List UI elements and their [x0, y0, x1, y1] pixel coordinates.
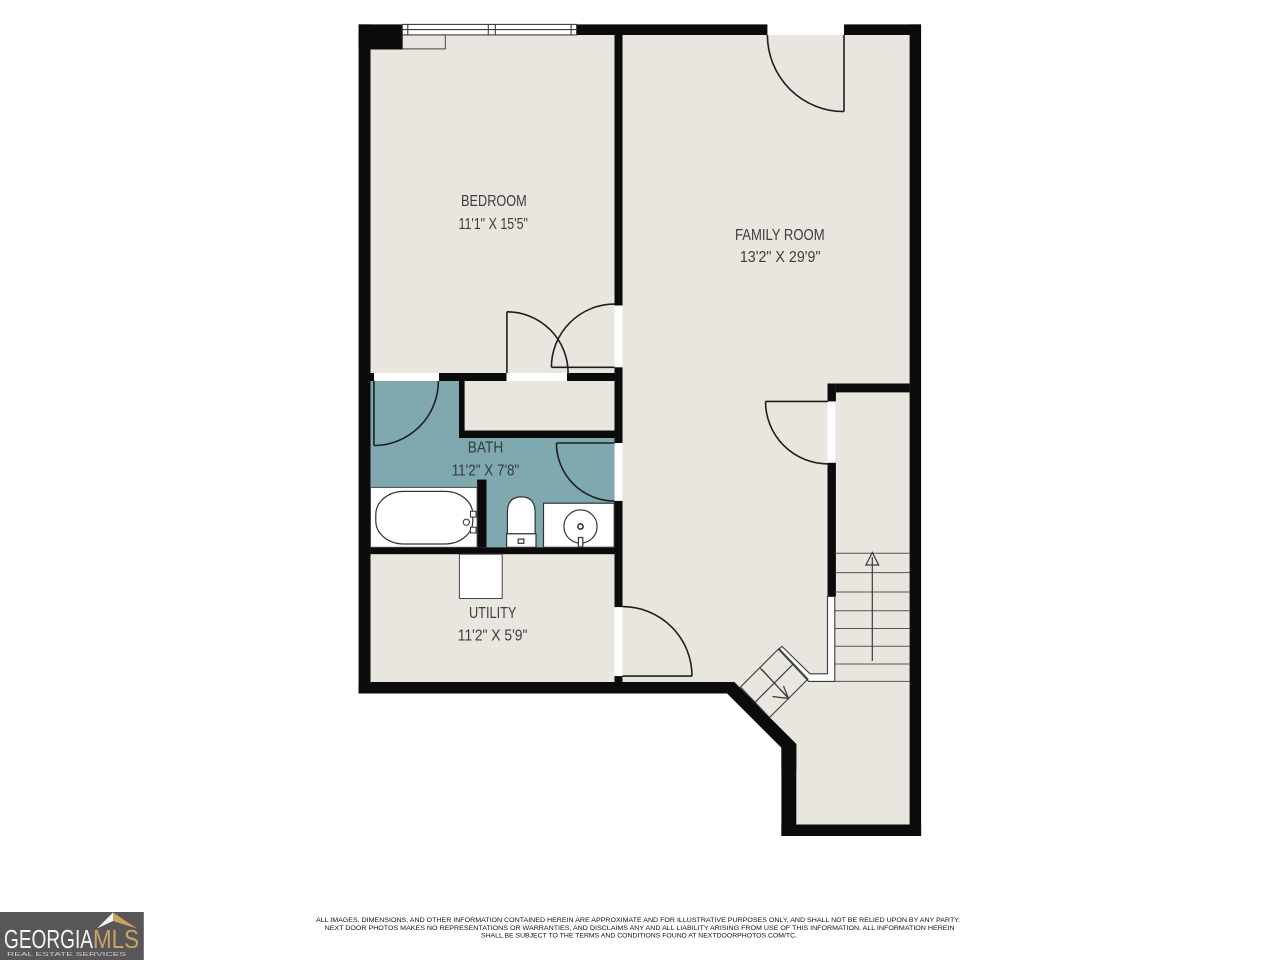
svg-text:UTILITY: UTILITY — [469, 605, 517, 622]
svg-text:BEDROOM: BEDROOM — [461, 193, 527, 210]
svg-text:MLS: MLS — [93, 924, 139, 954]
svg-text:ALL IMAGES, DIMENSIONS, AND OT: ALL IMAGES, DIMENSIONS, AND OTHER INFORM… — [316, 917, 960, 924]
svg-text:REAL ESTATE SERVICES: REAL ESTATE SERVICES — [7, 952, 126, 958]
svg-text:FAMILY ROOM: FAMILY ROOM — [735, 227, 825, 244]
svg-text:13'2" X 29'9": 13'2" X 29'9" — [740, 249, 821, 266]
svg-text:NEXT DOOR PHOTOS MAKES NO REPR: NEXT DOOR PHOTOS MAKES NO REPRESENTATION… — [325, 925, 955, 932]
svg-text:11'2" X 5'9": 11'2" X 5'9" — [458, 627, 528, 644]
svg-text:GEORGIA: GEORGIA — [4, 924, 93, 954]
svg-text:BATH: BATH — [468, 440, 503, 457]
svg-text:11'1" X 15'5": 11'1" X 15'5" — [458, 216, 528, 233]
svg-text:SHALL BE SUBJECT TO THE TERMS: SHALL BE SUBJECT TO THE TERMS AND CONDIT… — [481, 933, 797, 940]
svg-text:11'2" X 7'8": 11'2" X 7'8" — [452, 463, 520, 480]
